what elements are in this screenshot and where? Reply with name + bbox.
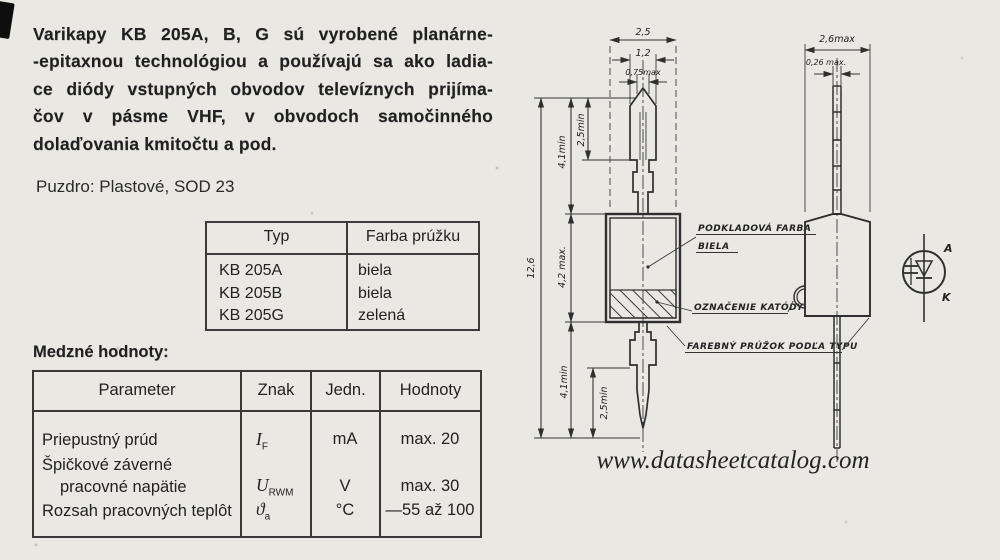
leader-line [648, 237, 696, 267]
dim-label: 1,2 [635, 48, 650, 59]
color-cell: biela [358, 262, 392, 280]
limits-header: Parameter [34, 381, 240, 400]
symbol-cell: IF [256, 429, 268, 452]
type-cell: KB 205B [219, 285, 282, 303]
intro-line: -epitaxnou technológiou a používajú sa a… [33, 48, 493, 75]
leader-line [667, 326, 685, 346]
color-cell: zelená [358, 307, 405, 325]
param-label: Špičkové záverné [42, 456, 172, 475]
limits-heading: Medzné hodnoty: [33, 343, 169, 362]
dim-label: 4,2 max. [557, 246, 568, 288]
symbol-subscript: F [262, 441, 268, 452]
unit-cell: V [339, 477, 350, 496]
param-label: Rozsah pracovných teplôt [42, 502, 232, 521]
symbol-subscript: a [265, 511, 271, 522]
table-divider [207, 253, 478, 255]
dim-label: 2,5 [635, 27, 650, 38]
limits-header: Hodnoty [381, 381, 480, 400]
package-line: Puzdro: Plastové, SOD 23 [36, 177, 234, 197]
symbol-subscript: RWM [269, 487, 294, 498]
limits-header: Znak [242, 381, 310, 400]
type-table: Typ Farba prúžku KB 205A biela KB 205B b… [205, 221, 480, 331]
side-view-drawing: 2,6max 0,26 max. [794, 34, 870, 462]
symbol: ϑ [256, 499, 265, 519]
dim-label: 12,6 [526, 257, 537, 278]
front-view-drawing: 12,6 4,1min 2,5min 4,2 max. 4,1min 2,5mi… [526, 27, 680, 452]
leader-dot [646, 265, 649, 268]
type-table-header: Farba prúžku [348, 228, 478, 246]
table-divider [34, 410, 480, 412]
dim-label: 4,1min [559, 365, 570, 398]
value-cell: —55 až 100 [386, 501, 475, 520]
unit-cell: °C [336, 501, 355, 520]
type-cell: KB 205G [219, 307, 284, 325]
type-cell: KB 205A [219, 262, 282, 280]
value-cell: max. 20 [401, 430, 460, 449]
dim-label: 2,6max [819, 34, 855, 45]
diode-symbol-schematic: A K [903, 234, 953, 322]
dim-label: 0,26 max. [806, 58, 846, 67]
cathode-label: K [942, 291, 952, 304]
dim-label: 2,5min [576, 113, 587, 146]
param-label: Priepustný prúd [42, 431, 158, 450]
base-color-label: PODKLADOVÁ FARBA [698, 222, 811, 234]
intro-paragraph: Varikapy KB 205A, B, G sú vyrobené planá… [33, 21, 493, 158]
stripe-label: FAREBNÝ PRÚŽOK PODĽA TYPU [687, 340, 858, 352]
dim-label: 2,5min [599, 386, 610, 419]
intro-line: dolaďovania kmitočtu a pod. [33, 131, 493, 158]
watermark-text: www.datasheetcatalog.com [578, 447, 888, 475]
dim-label: 0,75max [625, 68, 661, 77]
dim-label: 4,1min [557, 135, 568, 168]
datasheet-page: Varikapy KB 205A, B, G sú vyrobené planá… [0, 0, 1000, 560]
leader-dot [655, 300, 658, 303]
intro-line: čov v pásme VHF, v obvodoch samočinného [33, 103, 493, 130]
limits-table: Parameter Znak Jedn. Hodnoty Priepustný … [32, 370, 482, 538]
unit-cell: mA [333, 430, 358, 449]
symbol-cell: URWM [256, 475, 293, 498]
symbol-cell: ϑa [256, 499, 270, 522]
value-cell: max. 30 [401, 477, 460, 496]
anode-label: A [943, 242, 953, 255]
base-color-label: BIELA [698, 242, 730, 252]
type-table-header: Typ [207, 228, 346, 246]
intro-line: ce diódy vstupných obvodov televíznych p… [33, 76, 493, 103]
package-drawing: 12,6 4,1min 2,5min 4,2 max. 4,1min 2,5mi… [520, 0, 1000, 560]
intro-line: Varikapy KB 205A, B, G sú vyrobené planá… [33, 21, 493, 48]
body-outline [805, 214, 870, 316]
param-label: pracovné napätie [60, 478, 187, 497]
color-cell: biela [358, 285, 392, 303]
limits-header: Jedn. [312, 381, 379, 400]
scan-artifact [0, 1, 15, 39]
symbol: U [256, 475, 269, 495]
